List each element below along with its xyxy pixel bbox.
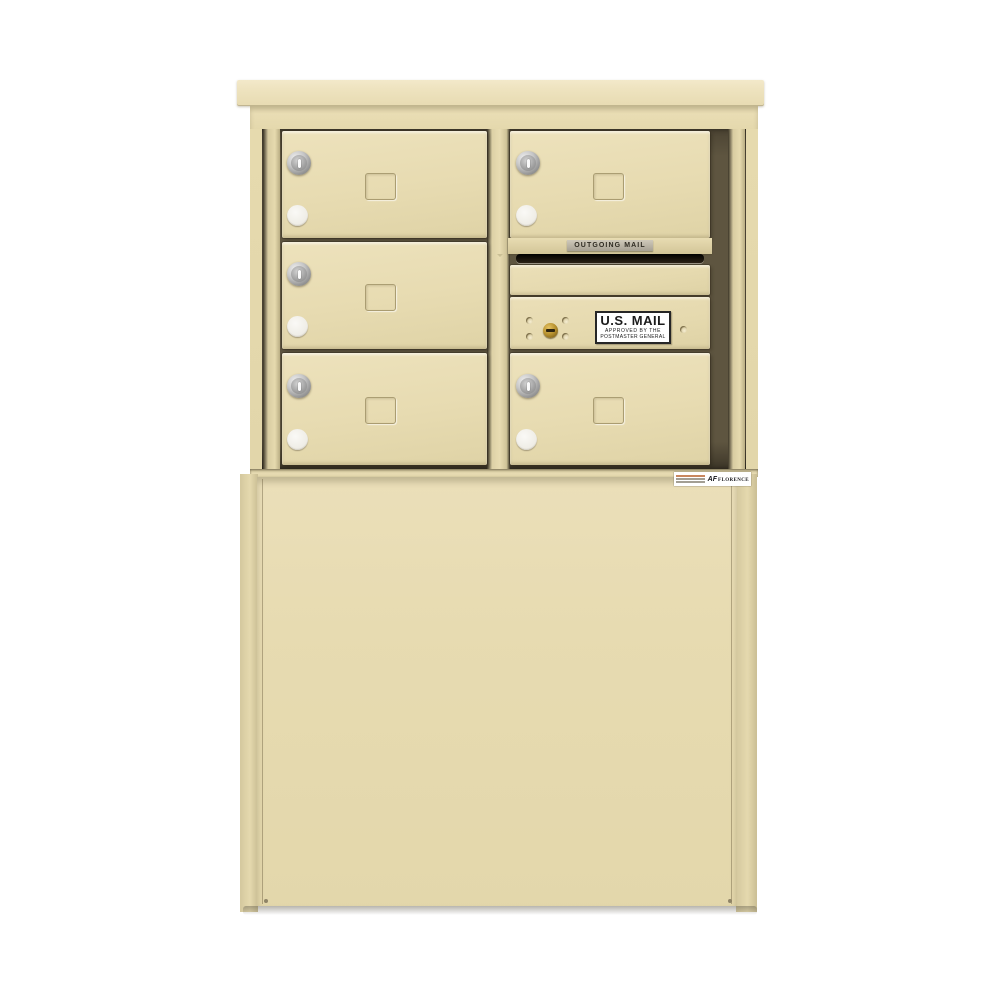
florence-logo-mark: AF (708, 476, 717, 483)
outgoing-mail-tray: OUTGOING MAIL (508, 238, 712, 254)
keyhole-icon (527, 159, 530, 168)
base-left-column (240, 474, 258, 912)
outgoing-mail-slot (516, 254, 704, 263)
brass-lock-slit (546, 329, 555, 332)
keyed-lock-icon (287, 151, 311, 175)
address-card-window (365, 173, 396, 200)
keyed-lock-icon (516, 151, 540, 175)
florence-brand-text: FLORENCE (718, 478, 749, 483)
tenant-door-3 (282, 353, 487, 465)
base-right-column (736, 474, 757, 912)
filler-panel (510, 265, 710, 295)
keyhole-icon (298, 270, 301, 279)
lock-cylinder (291, 155, 307, 171)
rivet (562, 317, 569, 324)
address-card-window (593, 173, 624, 200)
lock-cylinder (291, 378, 307, 394)
florence-logo: AF FLORENCE (708, 476, 749, 483)
lock-cylinder (520, 378, 536, 394)
label-fine-print (676, 475, 705, 483)
keyed-lock-icon (287, 262, 311, 286)
door-button (287, 316, 308, 337)
ground-shadow (243, 906, 757, 915)
door-button (287, 429, 308, 450)
collection-brass-lock-icon (543, 323, 558, 338)
keyhole-icon (298, 382, 301, 391)
rivet (526, 317, 533, 324)
cabinet-cap (237, 80, 764, 106)
base-seam-right (731, 479, 732, 904)
door-button (287, 205, 308, 226)
us-mail-decal: U.S. MAIL APPROVED BY THE POSTMASTER GEN… (595, 311, 671, 344)
keyhole-icon (527, 382, 530, 391)
keyhole-icon (298, 159, 301, 168)
manufacturer-label: AF FLORENCE (674, 472, 751, 486)
address-card-window (365, 397, 396, 424)
rivet (680, 326, 687, 333)
screw-icon (728, 899, 732, 903)
tenant-door-5 (510, 353, 710, 465)
tenant-door-4 (510, 131, 710, 238)
tenant-door-2 (282, 242, 487, 349)
mailbox-unit: OUTGOING MAIL U.S. MAIL APPROVED BY THE … (0, 0, 1000, 1000)
center-mullion (487, 129, 510, 469)
left-inner-stile (263, 129, 280, 469)
top-rail (250, 105, 758, 131)
lock-cylinder (520, 155, 536, 171)
collection-panel: U.S. MAIL APPROVED BY THE POSTMASTER GEN… (510, 297, 710, 349)
outgoing-mail-plate: OUTGOING MAIL (567, 240, 653, 251)
door-button (516, 429, 537, 450)
pedestal-base (257, 477, 737, 906)
right-inner-stile (728, 129, 745, 469)
address-card-window (593, 397, 624, 424)
rivet (562, 333, 569, 340)
decal-line-3: POSTMASTER GENERAL (597, 334, 669, 340)
decal-line-1: U.S. MAIL (597, 314, 669, 328)
rivet (526, 333, 533, 340)
lock-cylinder (291, 266, 307, 282)
tenant-door-1 (282, 131, 487, 238)
keyed-lock-icon (287, 374, 311, 398)
keyed-lock-icon (516, 374, 540, 398)
screw-icon (264, 899, 268, 903)
door-button (516, 205, 537, 226)
base-seam-left (262, 479, 263, 904)
address-card-window (365, 284, 396, 311)
